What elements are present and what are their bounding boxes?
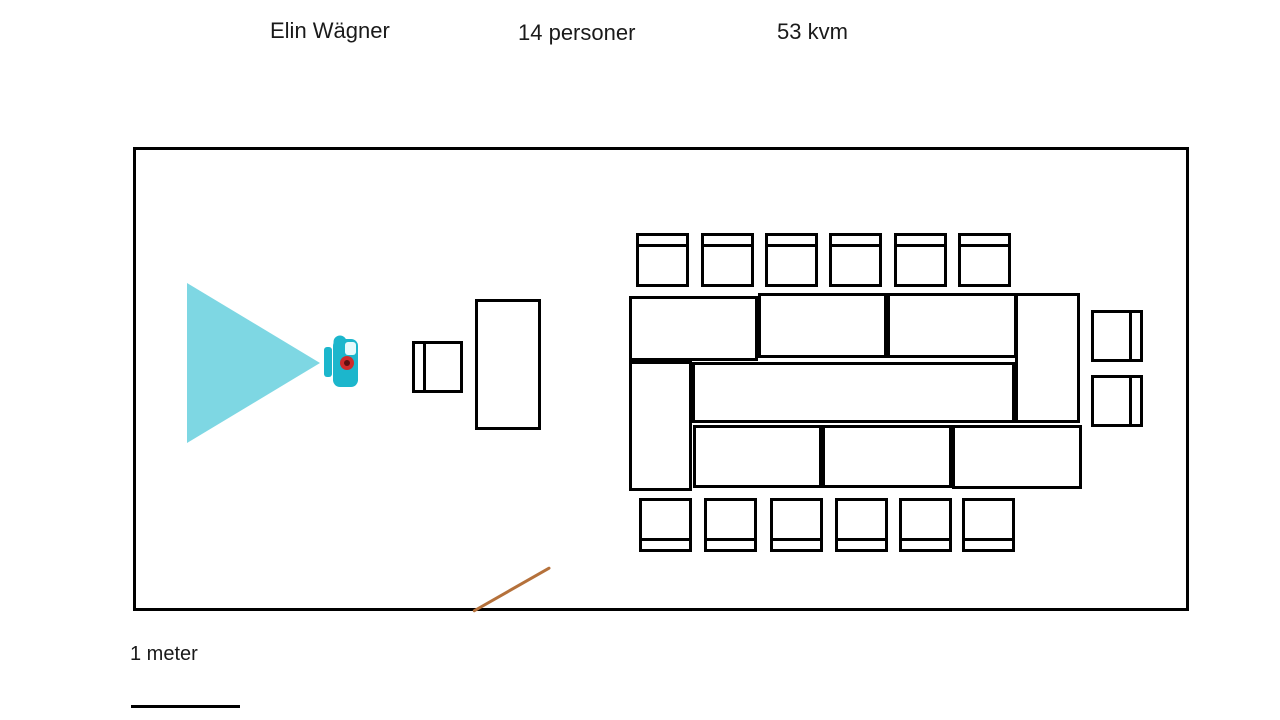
chair-backrest [768,244,815,247]
chair-6 [894,233,947,287]
area-label: 53 kvm [777,19,848,45]
table-module-8 [822,425,952,488]
capacity-label: 14 personer [518,20,635,46]
chair-13 [962,498,1015,552]
chair-2 [636,233,689,287]
chair-backrest [707,538,754,541]
chair-7 [958,233,1011,287]
chair-backrest [773,538,820,541]
table-module-5 [692,362,1015,423]
projector-icon [320,333,360,391]
chair-backrest [832,244,879,247]
chair-15 [1091,375,1143,427]
chair-backrest [1129,313,1132,359]
table-module-6 [629,361,692,491]
table-module-4 [1015,293,1080,423]
table-module-3 [887,293,1017,358]
table-module-2 [758,293,887,358]
chair-backrest [961,244,1008,247]
scale-bar [131,705,240,708]
chair-5 [829,233,882,287]
chair-1 [412,341,463,393]
chair-backrest [838,538,885,541]
chair-11 [835,498,888,552]
table-module-9 [952,425,1082,489]
chair-backrest [642,538,689,541]
chair-backrest [1129,378,1132,424]
chair-backrest [965,538,1012,541]
chair-8 [639,498,692,552]
chair-9 [704,498,757,552]
lectern-table [475,299,541,430]
chair-12 [899,498,952,552]
scale-label: 1 meter [130,643,198,666]
chair-4 [765,233,818,287]
chair-backrest [639,244,686,247]
table-module-7 [693,425,822,488]
chair-14 [1091,310,1143,362]
table-module-1 [629,296,758,361]
chair-backrest [897,244,944,247]
chair-backrest [423,344,426,390]
chair-10 [770,498,823,552]
chair-backrest [704,244,751,247]
chair-3 [701,233,754,287]
chair-backrest [902,538,949,541]
room-name-label: Elin Wägner [270,18,390,44]
